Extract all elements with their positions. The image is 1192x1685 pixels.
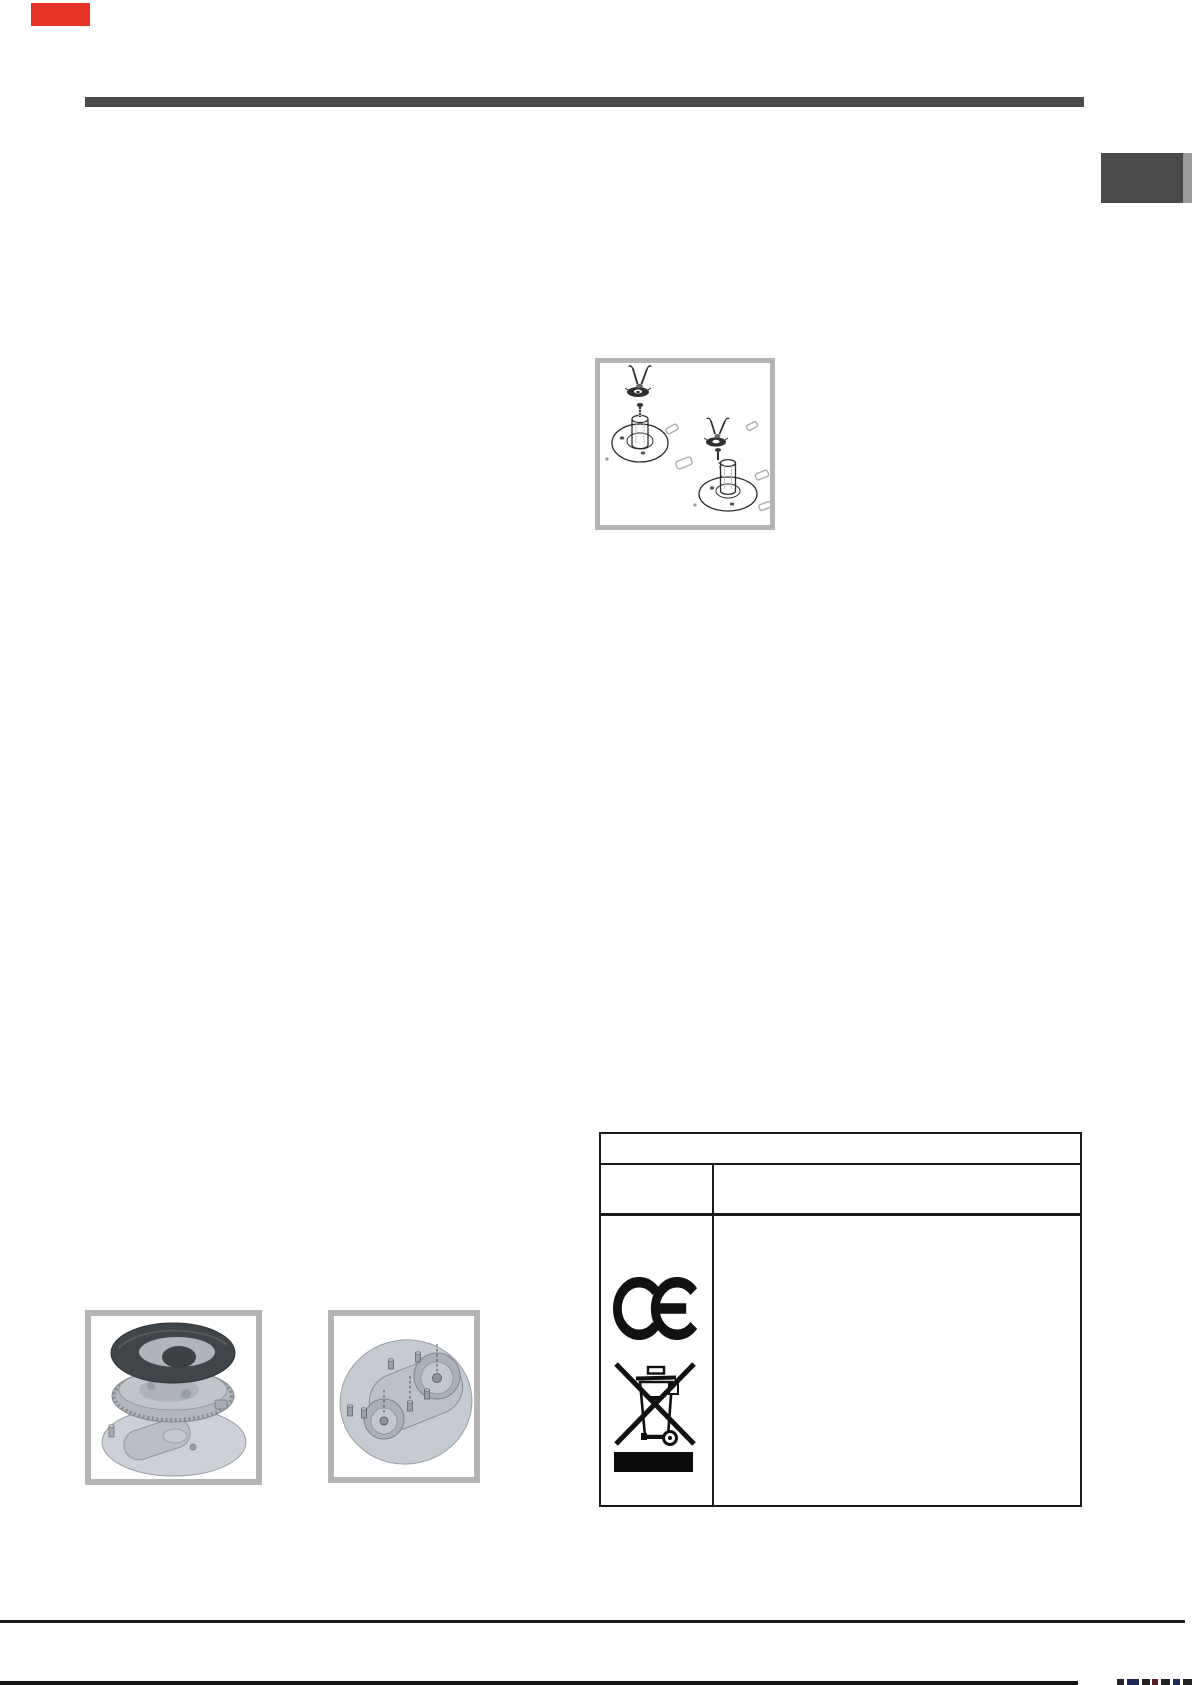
print-fragment: [1183, 1679, 1192, 1685]
figure-burner-base: [328, 1310, 480, 1483]
top-section-rule: [85, 97, 1084, 107]
red-marker-patch: [31, 3, 90, 26]
print-fragment: [1117, 1679, 1124, 1685]
print-fragment: [1152, 1679, 1158, 1685]
print-fragment: [1173, 1679, 1180, 1685]
figure-screw-installation: [595, 358, 775, 530]
print-fragment: [1142, 1679, 1150, 1685]
print-fragment: [1127, 1679, 1139, 1685]
page-edge-tab: [1101, 153, 1183, 203]
weee-crossed-out-wheelie-bin-icon: [610, 1354, 700, 1449]
data-plate-table: [599, 1132, 1082, 1507]
bottom-edge-rule: [0, 1681, 1078, 1685]
ce-mark-icon: [613, 1277, 697, 1340]
figure-burner-exploded: [85, 1310, 262, 1485]
burner-exploded-view-diagram: [91, 1316, 256, 1479]
screwdriver-burner-cup-installation-diagram: [600, 363, 770, 525]
print-fragment: [1161, 1679, 1170, 1685]
weee-black-bar: [614, 1452, 693, 1472]
table-row-divider-2: [601, 1213, 1080, 1216]
manual-page: [0, 0, 1192, 1685]
table-column-divider: [712, 1163, 714, 1505]
page-edge-tab-shadow: [1183, 153, 1192, 203]
table-row-divider-1: [601, 1163, 1080, 1165]
burner-base-plate-diagram: [334, 1316, 474, 1477]
footer-separator-rule: [0, 1620, 1185, 1623]
